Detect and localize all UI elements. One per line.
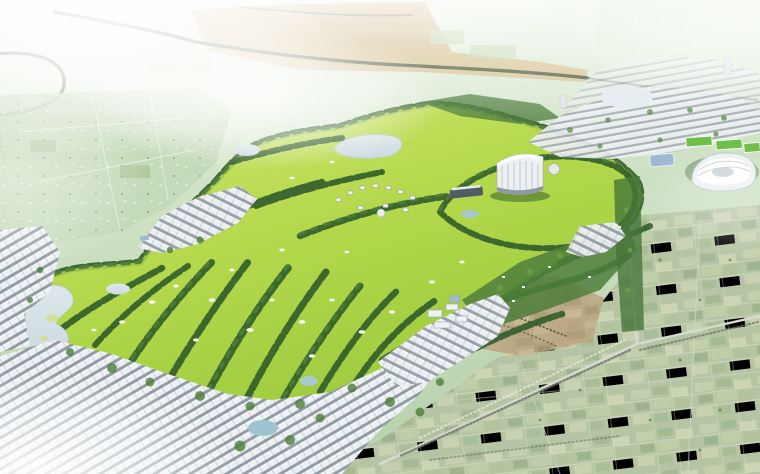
dome-pavilion <box>377 209 385 217</box>
dome-pavilion <box>549 164 560 175</box>
aerial-view <box>0 0 760 474</box>
pond <box>248 420 278 436</box>
masterplan-rendering <box>0 0 760 474</box>
pond <box>461 210 479 218</box>
lake-island <box>46 314 58 322</box>
lake-island <box>40 335 48 340</box>
pond <box>300 376 318 386</box>
pond <box>106 284 130 295</box>
